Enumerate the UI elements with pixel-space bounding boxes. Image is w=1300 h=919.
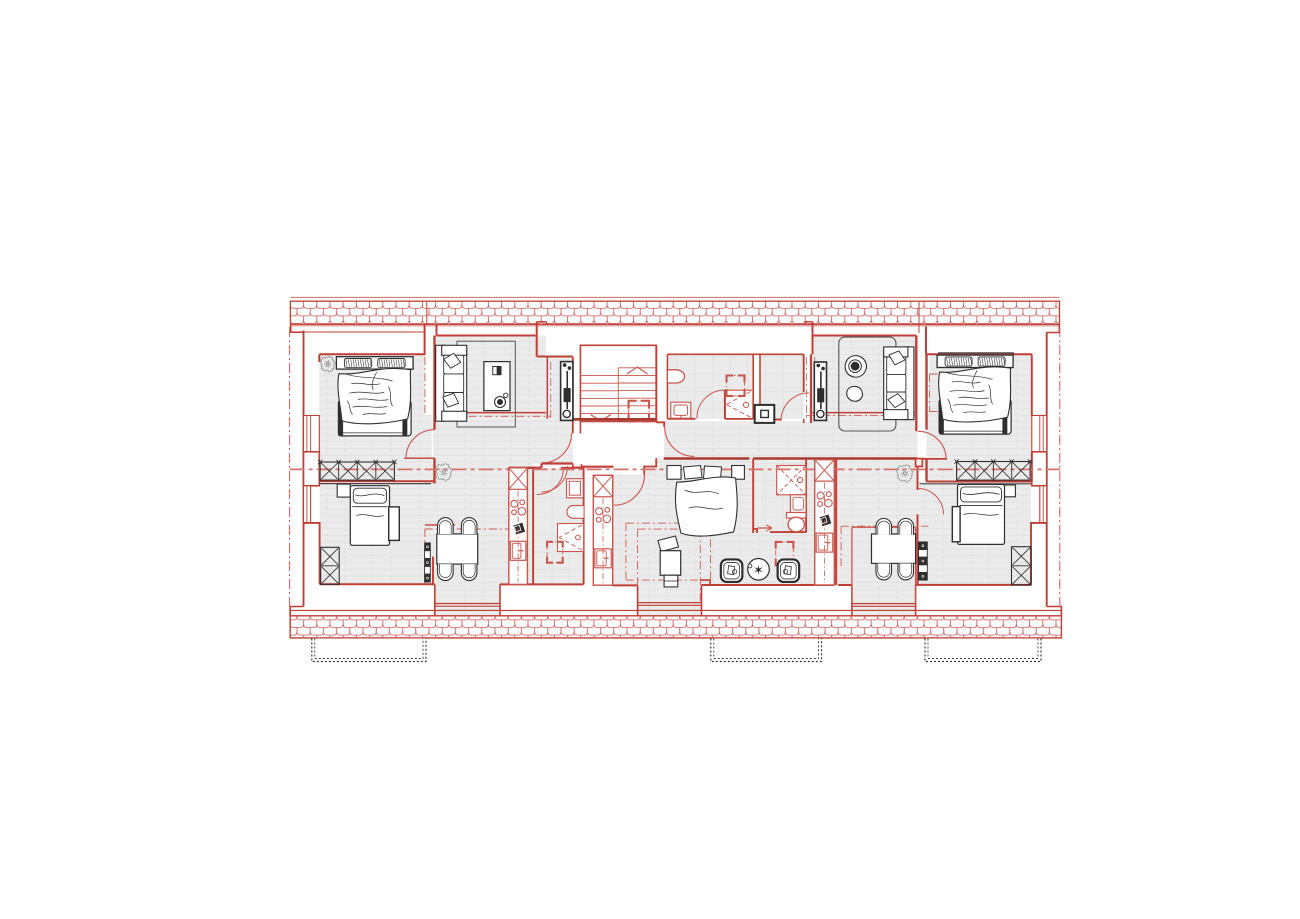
svg-text:✶: ✶ bbox=[753, 563, 764, 578]
